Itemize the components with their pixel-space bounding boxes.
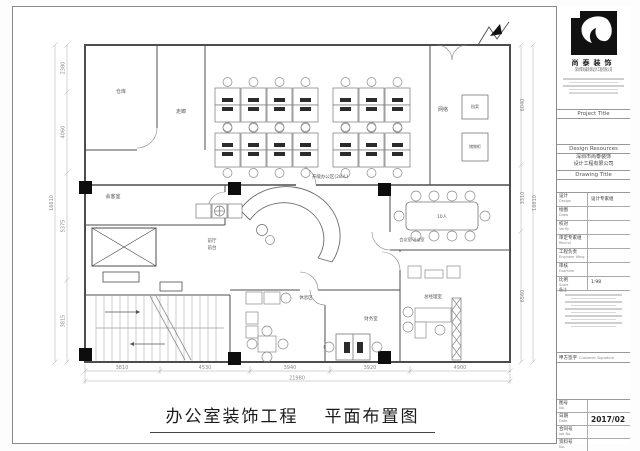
table-row: 图号No. — [557, 400, 630, 413]
label-storage: 仓库 — [116, 88, 126, 95]
svg-text:16610: 16610 — [532, 195, 538, 211]
svg-text:3940: 3940 — [284, 365, 297, 371]
svg-text:16610: 16610 — [49, 195, 55, 211]
svg-text:5375: 5375 — [61, 220, 67, 233]
table-row: 绘图Draw — [557, 207, 630, 221]
svg-text:3920: 3920 — [364, 365, 377, 371]
label-front-desk: 前台 — [208, 244, 217, 251]
project-title-header: Project Title — [557, 109, 630, 119]
table-row: 校对Verify — [557, 221, 630, 235]
label-storage-cabinet: 储物柜 — [469, 143, 481, 149]
svg-text:3810: 3810 — [116, 365, 129, 371]
svg-text:21980: 21980 — [289, 376, 305, 382]
label-finance-room: 财务室 — [364, 315, 378, 322]
finance-room-furniture — [324, 334, 382, 360]
svg-text:6560: 6560 — [520, 290, 526, 303]
floor-plan: 仓库 走廊 开敞办公区(28人) 网络 档案 储物柜 会客室 前厅 前台 会议室… — [0, 0, 556, 451]
rest-area-furniture — [246, 292, 291, 362]
table-row: 合同号Job No. — [557, 426, 630, 439]
sheet-info-table: 图号No. 日期Date 2017/02 合同号Job No. 资料号No. — [557, 399, 630, 451]
svg-text:4900: 4900 — [454, 365, 467, 371]
stairs — [96, 296, 224, 361]
svg-text:3815: 3815 — [61, 315, 67, 328]
drawing-title-header: Drawing Title — [557, 170, 630, 180]
table-row: 日期Date 2017/02 — [557, 413, 630, 426]
label-archive-cabinet: 档案 — [471, 103, 479, 109]
table-row: 资料号No. — [557, 439, 630, 451]
approval-table: 设计Design 设计专家组 绘图Draw 校对Verify 审定专家组Reci… — [557, 192, 630, 291]
table-row: 设计Design 设计专家组 — [557, 193, 630, 207]
company-name: 深圳市尚泰装饰设计工程有限公司 — [573, 67, 613, 73]
pantry-counter — [196, 204, 242, 218]
client-name: 深圳市尚泰装饰 设计工程有限公司 — [557, 154, 630, 168]
drawing-footer-title: 办公室装饰工程平面布置图 — [150, 402, 435, 433]
label-meeting-room: 会议室/洽谈室 — [399, 236, 424, 242]
project-name: 办公室装饰工程 — [166, 407, 299, 427]
workstation-clusters — [215, 78, 410, 178]
svg-text:4060: 4060 — [61, 126, 67, 139]
label-meeting-capacity: 10人 — [437, 214, 448, 220]
svg-text:6040: 6040 — [520, 99, 526, 112]
reception-desk — [240, 187, 340, 262]
label-network: 网络 — [438, 106, 448, 113]
customer-signature-row: 甲方签字 Customer Signature — [557, 352, 630, 363]
date-value: 2017/02 — [588, 413, 630, 425]
label-reception-room: 会客室 — [105, 193, 120, 200]
gm-office-furniture — [403, 266, 461, 360]
table-row: 审核Examine — [557, 263, 630, 277]
shangtai-logo — [571, 11, 617, 55]
label-front-hall: 前厅 — [208, 237, 217, 244]
title-block: 尚泰装饰 深圳市尚泰装饰设计工程有限公司 Project Title Desig… — [556, 6, 630, 444]
drawing-name: 平面布置图 — [325, 407, 420, 427]
company-address-lines — [557, 76, 630, 96]
notes-label: 备注 — [559, 287, 628, 292]
table-row: 审定专家组Recind — [557, 235, 630, 249]
label-corridor: 走廊 — [176, 108, 186, 115]
label-rest-area: 休息区 — [299, 294, 313, 301]
notes-block: 备注 — [557, 286, 630, 330]
table-row: 工程负责Engineer Wing — [557, 249, 630, 263]
svg-text:2380: 2380 — [61, 62, 67, 75]
svg-text:3310: 3310 — [520, 192, 526, 205]
svg-text:4530: 4530 — [199, 365, 212, 371]
label-open-office: 开敞办公区(28人) — [312, 173, 348, 180]
drawing-sheet: 仓库 走廊 开敞办公区(28人) 网络 档案 储物柜 会客室 前厅 前台 会议室… — [0, 0, 640, 451]
label-gm-office: 总经理室 — [424, 293, 442, 300]
design-resources-header: Design Resources — [557, 144, 630, 154]
